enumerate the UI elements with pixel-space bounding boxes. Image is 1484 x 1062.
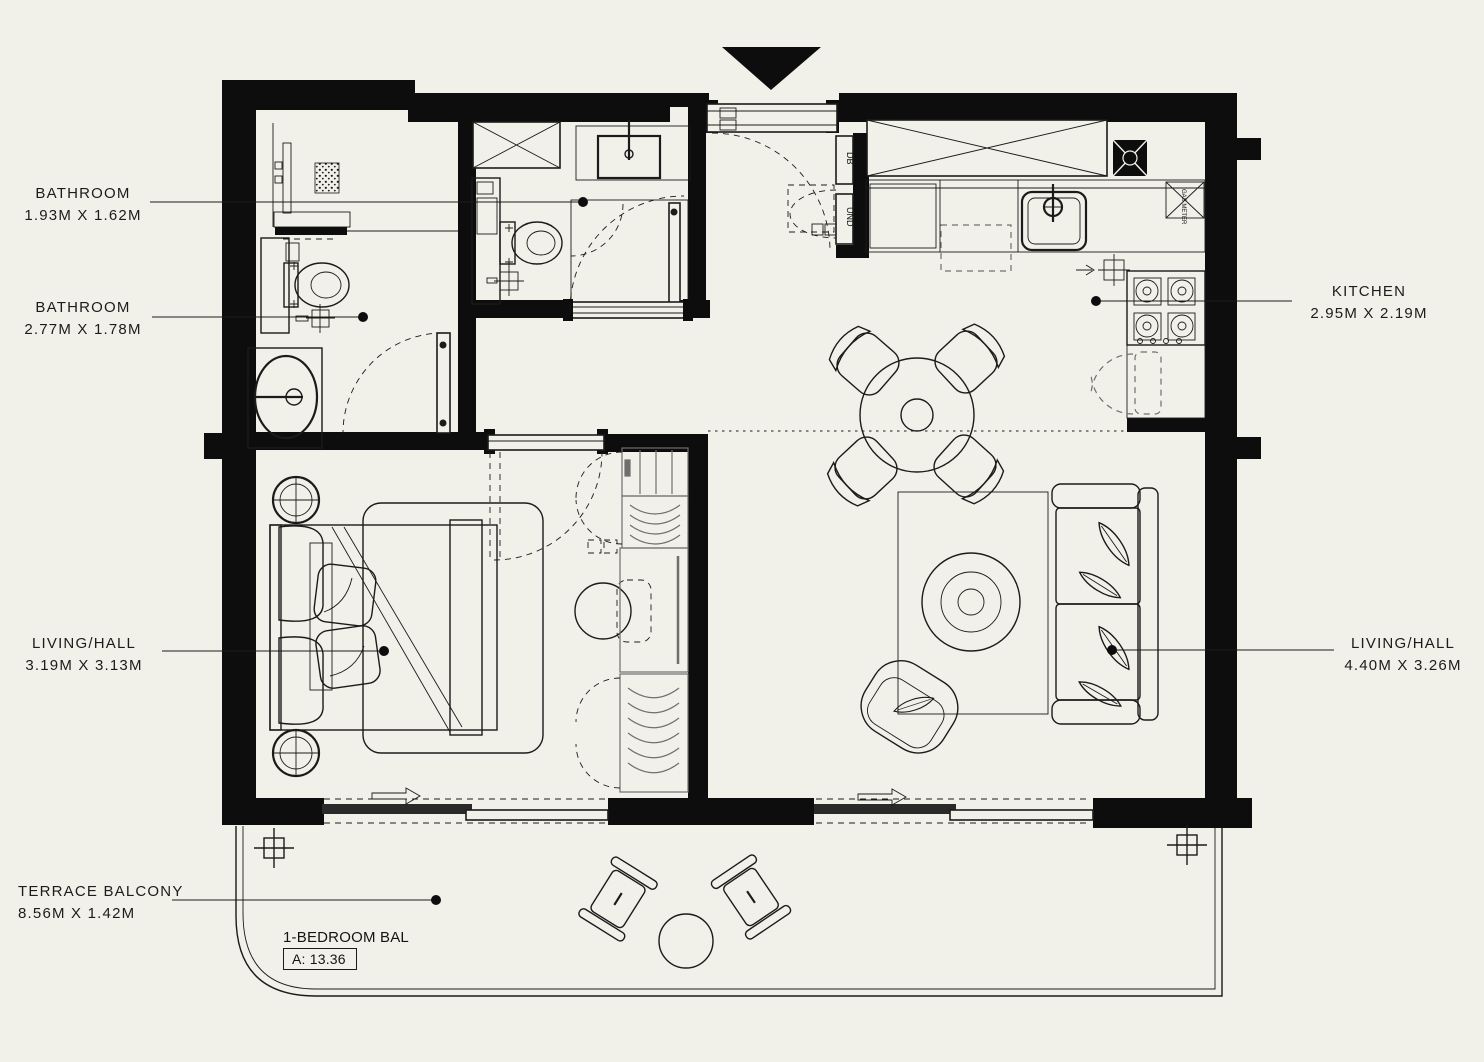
slide-arrow-icon — [858, 789, 906, 805]
room-dims: 3.19M X 3.13M — [8, 655, 160, 677]
room-name: BATHROOM — [14, 297, 152, 319]
railing-outer — [236, 826, 1222, 996]
stove — [1127, 271, 1205, 345]
und-panel-label: UND — [845, 207, 855, 227]
coffee-table — [922, 553, 1020, 651]
balcony-table — [659, 914, 713, 968]
gas-meter-box: GAS METER — [1166, 182, 1204, 225]
dining-table — [860, 358, 974, 472]
room-name: BATHROOM — [16, 183, 150, 205]
door-swing — [494, 452, 602, 560]
room-dims: 1.93M X 1.62M — [16, 205, 150, 227]
bedroom-furniture — [270, 476, 651, 777]
room-name: KITCHEN — [1294, 281, 1444, 303]
room-label-kitchen: KITCHEN 2.95M X 2.19M — [1294, 281, 1444, 325]
kitchen-sink — [1022, 184, 1086, 250]
room-label-terrace: TERRACE BALCONY 8.56M X 1.42M — [18, 881, 188, 925]
railing-hatch-icon — [254, 828, 294, 868]
bedroom-door — [488, 435, 604, 560]
bed — [270, 503, 543, 753]
vanity — [261, 238, 289, 333]
sofa — [1052, 484, 1158, 724]
dining-chair — [823, 320, 905, 401]
floor-drain-icon — [296, 304, 335, 333]
closet — [576, 448, 688, 792]
entrance-arrow-icon — [722, 47, 821, 90]
room-dims: 4.40M X 3.26M — [1332, 655, 1474, 677]
floor-drain-icon — [487, 266, 524, 296]
shelf — [274, 212, 350, 227]
living-furniture — [850, 484, 1158, 764]
dining-chair — [821, 431, 903, 512]
slider-panel — [814, 804, 956, 814]
balcony-unit-tag: 1-BEDROOM BAL — [283, 929, 409, 946]
kitchen-fixtures: GAS METER — [708, 180, 1205, 431]
foot-runner — [450, 520, 482, 735]
room-name: TERRACE BALCONY — [18, 881, 188, 903]
vanity — [472, 178, 500, 304]
slide-arrow-icon — [372, 788, 420, 804]
pillow — [279, 526, 323, 621]
toilet — [284, 262, 349, 308]
railing-inner — [243, 826, 1215, 989]
door-swing — [343, 333, 443, 433]
balcony-area-box: A: 13.36 — [283, 948, 357, 970]
railing-hatch-icon — [1167, 825, 1207, 865]
slider-panel — [466, 810, 608, 820]
room-label-bedroom: LIVING/HALL 3.19M X 3.13M — [8, 633, 160, 677]
bathroom-top-door — [566, 302, 690, 318]
room-dims: 2.77M X 1.78M — [14, 319, 152, 341]
balcony-area-value: A: 13.36 — [292, 951, 346, 967]
bedside-lamp-icon — [272, 476, 320, 524]
slider-panel — [950, 810, 1093, 820]
armchair — [850, 649, 969, 764]
bedside-lamp-icon — [272, 729, 320, 777]
dining-set — [821, 318, 1011, 512]
floor-plan-canvas: DB UND — [0, 0, 1484, 1062]
room-label-living: LIVING/HALL 4.40M X 3.26M — [1332, 633, 1474, 677]
drain-and-arrow — [1076, 254, 1130, 286]
room-label-bathroom-left: BATHROOM 2.77M X 1.78M — [14, 297, 152, 341]
shower — [571, 200, 688, 318]
dining-chair — [928, 429, 1010, 510]
dining-chair — [929, 318, 1011, 399]
fridge-dashed — [1091, 345, 1205, 418]
counter — [866, 180, 1205, 252]
room-label-bathroom-top: BATHROOM 1.93M X 1.62M — [16, 183, 150, 227]
bathroom-left-fixtures — [248, 123, 458, 448]
entrance: DB UND — [707, 47, 855, 251]
slider-panel — [322, 804, 472, 814]
toilet — [500, 222, 562, 266]
door-swing — [570, 196, 684, 310]
rug — [898, 492, 1048, 714]
desk-chair — [575, 580, 651, 642]
room-dims: 8.56M X 1.42M — [18, 903, 188, 925]
balcony-chair — [710, 853, 792, 940]
balcony — [236, 825, 1222, 996]
room-dims: 2.95M X 2.19M — [1294, 303, 1444, 325]
balcony-chair — [577, 856, 658, 943]
black-shaft-icon — [1113, 140, 1147, 176]
shower-drain — [315, 163, 339, 193]
leaf-pillow — [1076, 519, 1134, 711]
gas-meter-label: GAS METER — [1180, 189, 1186, 225]
db-panel-label: DB — [845, 152, 855, 165]
floor-plan-drawing: DB UND — [0, 0, 1484, 1062]
room-name: LIVING/HALL — [1332, 633, 1474, 655]
room-name: LIVING/HALL — [8, 633, 160, 655]
